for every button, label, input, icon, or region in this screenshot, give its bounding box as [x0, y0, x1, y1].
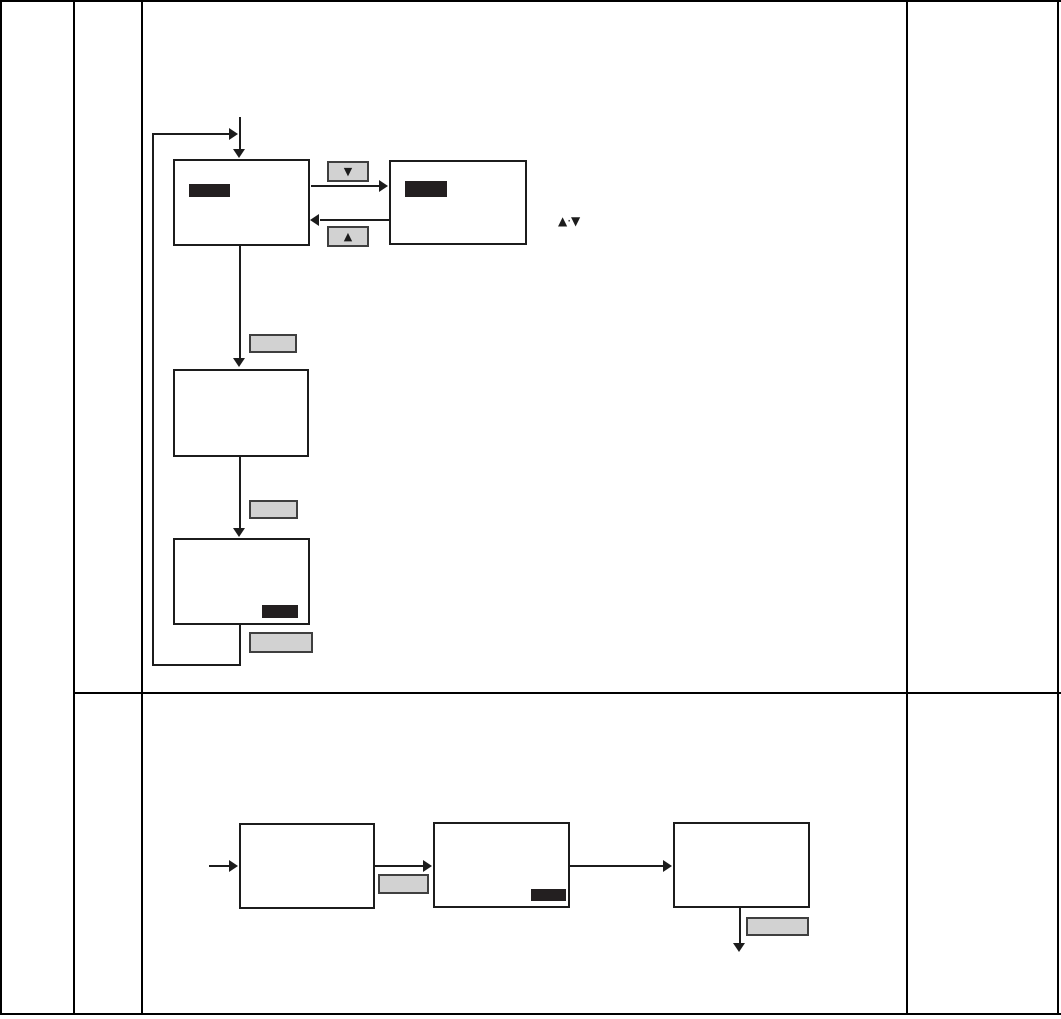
- down-key-button: ▼: [327, 161, 369, 182]
- connector-line: [311, 185, 381, 187]
- connector-line: [570, 865, 665, 867]
- table-border-right: [1057, 1, 1059, 1015]
- loop-line-left: [152, 133, 154, 666]
- table-border-left: [0, 1, 2, 1015]
- display-text-bar: [189, 184, 230, 197]
- display-text-bar: [405, 181, 447, 197]
- arrowhead-down-icon: [233, 149, 245, 158]
- up-key-button: ▲: [327, 226, 369, 247]
- screen-box-2: [389, 160, 527, 245]
- table-column-divider-1: [73, 1, 75, 1015]
- arrowhead-right-icon: [229, 128, 238, 140]
- connector-line: [239, 457, 241, 530]
- blank-key-button-5: [746, 917, 809, 936]
- blank-key-button-4: [378, 874, 429, 894]
- connector-line: [739, 908, 741, 945]
- loop-line-top: [152, 133, 230, 135]
- display-text-bar: [531, 889, 566, 901]
- table-border-bottom: [0, 1013, 1061, 1015]
- screen-box-7: [673, 822, 810, 908]
- connector-line: [209, 865, 231, 867]
- arrowhead-down-icon: [233, 358, 245, 367]
- screen-box-1: [173, 159, 310, 246]
- display-text-bar: [262, 605, 298, 618]
- scanned-manual-page: ▼ ▲ ▲·▼: [0, 0, 1061, 1019]
- up-triangle-icon: ▲: [344, 231, 352, 242]
- down-triangle-icon: ▼: [344, 166, 352, 177]
- connector-line: [239, 625, 241, 666]
- arrowhead-left-icon: [310, 214, 319, 226]
- screen-box-3: [173, 369, 309, 457]
- connector-line: [239, 246, 241, 360]
- up-down-keys-label: ▲·▼: [558, 215, 580, 227]
- arrowhead-right-icon: [423, 860, 432, 872]
- arrowhead-right-icon: [379, 180, 388, 192]
- table-column-divider-3: [906, 1, 908, 1015]
- table-header-divider: [0, 0, 1061, 2]
- blank-key-button-1: [249, 334, 297, 353]
- arrowhead-right-icon: [663, 860, 672, 872]
- connector-line: [375, 865, 425, 867]
- arrowhead-down-icon: [233, 528, 245, 537]
- blank-key-button-3: [249, 632, 313, 653]
- table-row-divider: [74, 692, 1061, 694]
- connector-line: [239, 117, 241, 150]
- blank-key-button-2: [249, 500, 298, 519]
- arrowhead-down-icon: [733, 943, 745, 952]
- loop-line-bottom: [152, 664, 241, 666]
- arrowhead-right-icon: [229, 860, 238, 872]
- screen-box-5: [239, 823, 375, 909]
- table-column-divider-2: [141, 1, 143, 1015]
- connector-line: [320, 219, 389, 221]
